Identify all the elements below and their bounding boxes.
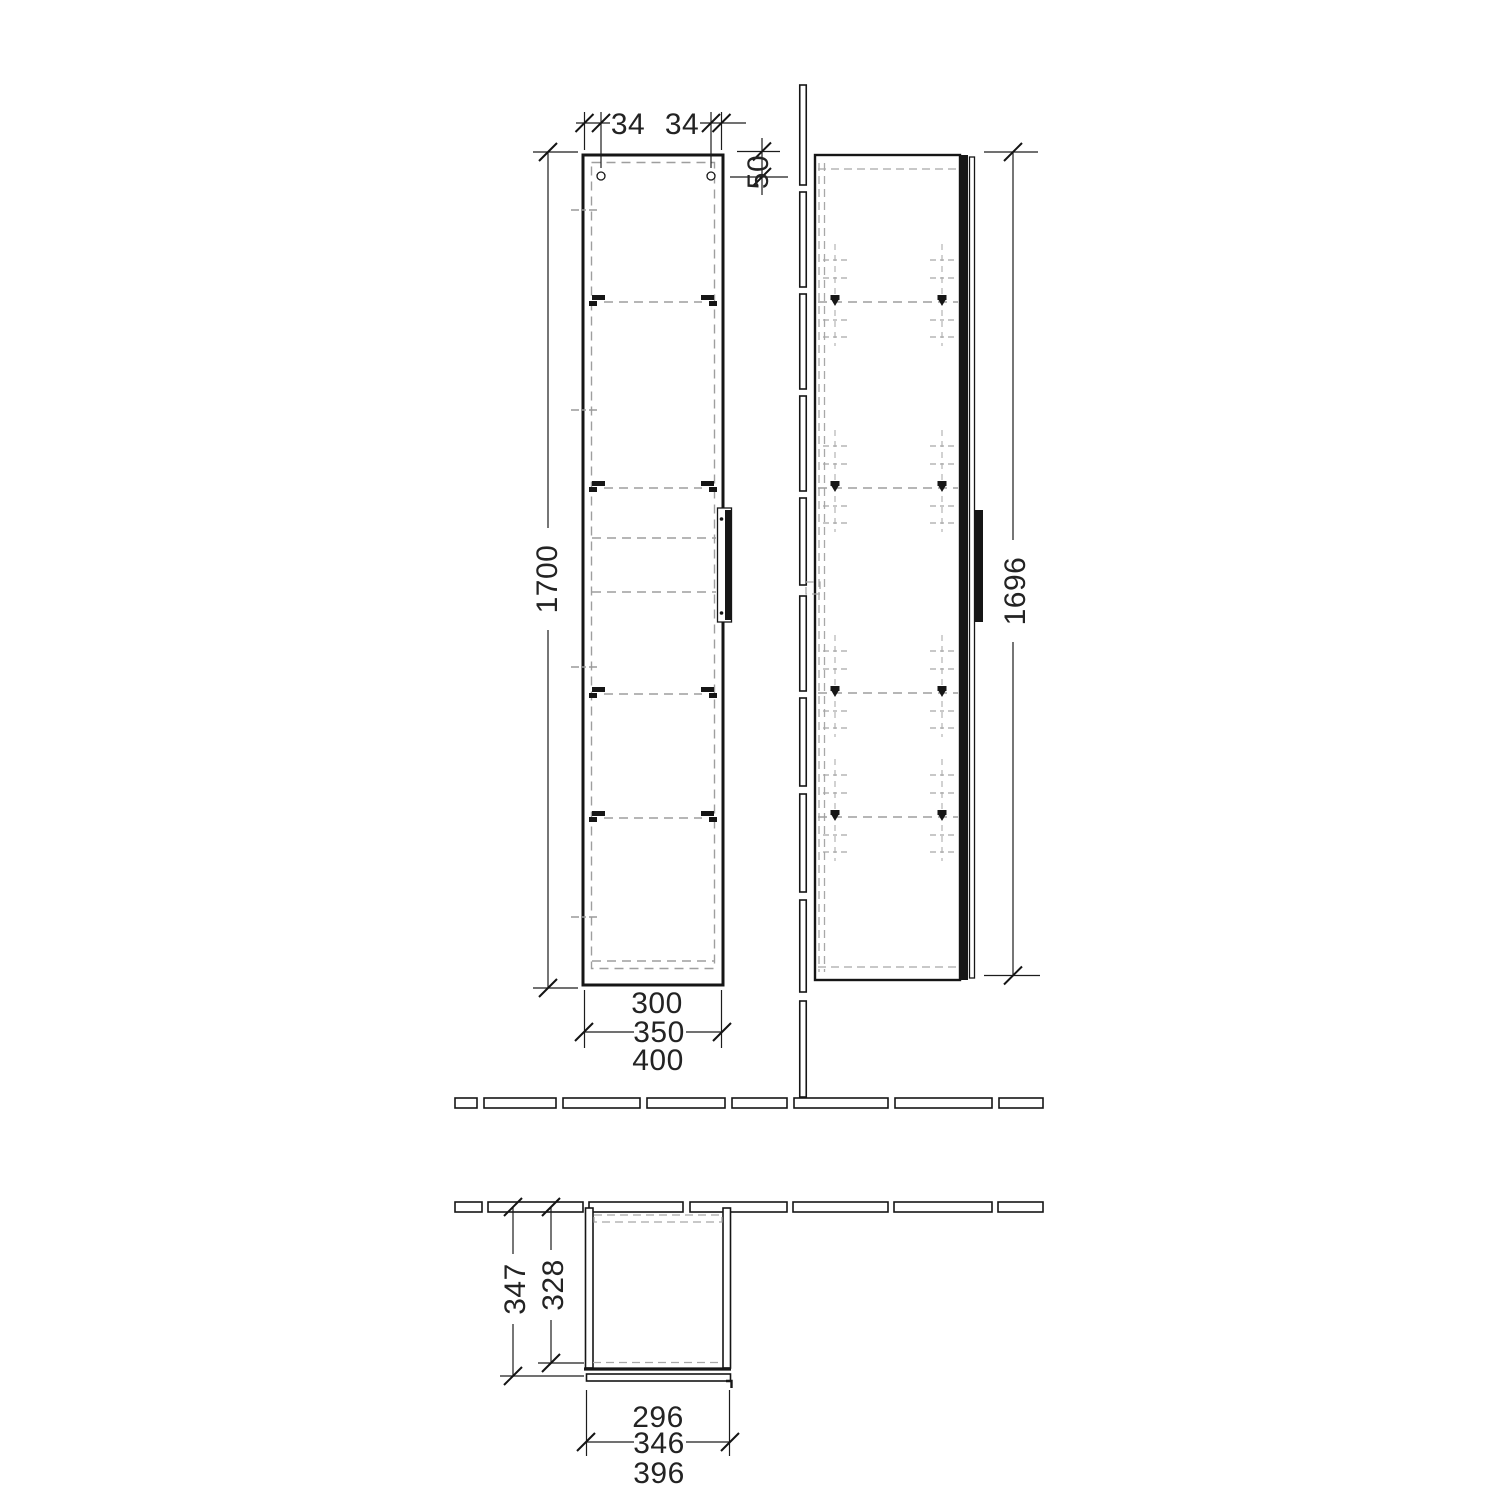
mounting-hole-left (597, 172, 605, 180)
dim-plan-width-mid: 346 (633, 1427, 685, 1460)
wall-line-lower (455, 1202, 1043, 1212)
technical-drawing-canvas: 34 34 50 1700 300 350 (0, 0, 1500, 1500)
dim-plan-width-large: 396 (633, 1457, 685, 1490)
side-view: 1696 (800, 85, 1040, 1097)
front-view: 34 34 50 1700 300 350 (531, 108, 788, 1077)
dim-side-height-label: 1696 (999, 557, 1032, 626)
door-handle-front (718, 508, 733, 622)
side-cabinet-body (815, 155, 960, 980)
plan-door-edge-hook (726, 1381, 732, 1388)
dim-front-hinge-left: 34 (611, 108, 645, 141)
dim-front-width-large: 400 (632, 1044, 684, 1077)
dim-front-hinge-right: 34 (665, 108, 699, 141)
dim-plan-widths: 296 346 396 (577, 1390, 739, 1490)
dim-front-height: 1700 (531, 143, 578, 997)
dim-front-widths: 300 350 400 (575, 987, 731, 1077)
dim-front-height-label: 1700 (531, 545, 564, 614)
side-door-panel (961, 155, 975, 980)
wall-line-vertical (800, 85, 807, 1097)
wall-line-upper (455, 1098, 1043, 1108)
front-cabinet-outline (583, 155, 723, 985)
dim-side-height: 1696 (984, 143, 1040, 985)
plan-door-panel (587, 1374, 731, 1381)
dim-plan-depth-body: 328 (537, 1198, 584, 1372)
door-handle-side (975, 510, 984, 622)
plan-left-side-panel (586, 1208, 594, 1368)
dim-plan-depth-total-label: 347 (499, 1263, 532, 1315)
dim-front-top-offset: 50 (742, 155, 775, 189)
dim-top-offset: 50 (730, 138, 788, 195)
plan-right-side-panel (723, 1208, 731, 1368)
plan-view: 347 328 296 346 396 (455, 1098, 1043, 1490)
plan-back-panel-dashed (594, 1215, 722, 1222)
tall-cabinet-dimension-drawing: 34 34 50 1700 300 350 (0, 0, 1500, 1500)
mounting-hole-right (707, 172, 715, 180)
dim-plan-depth-body-label: 328 (537, 1259, 570, 1311)
